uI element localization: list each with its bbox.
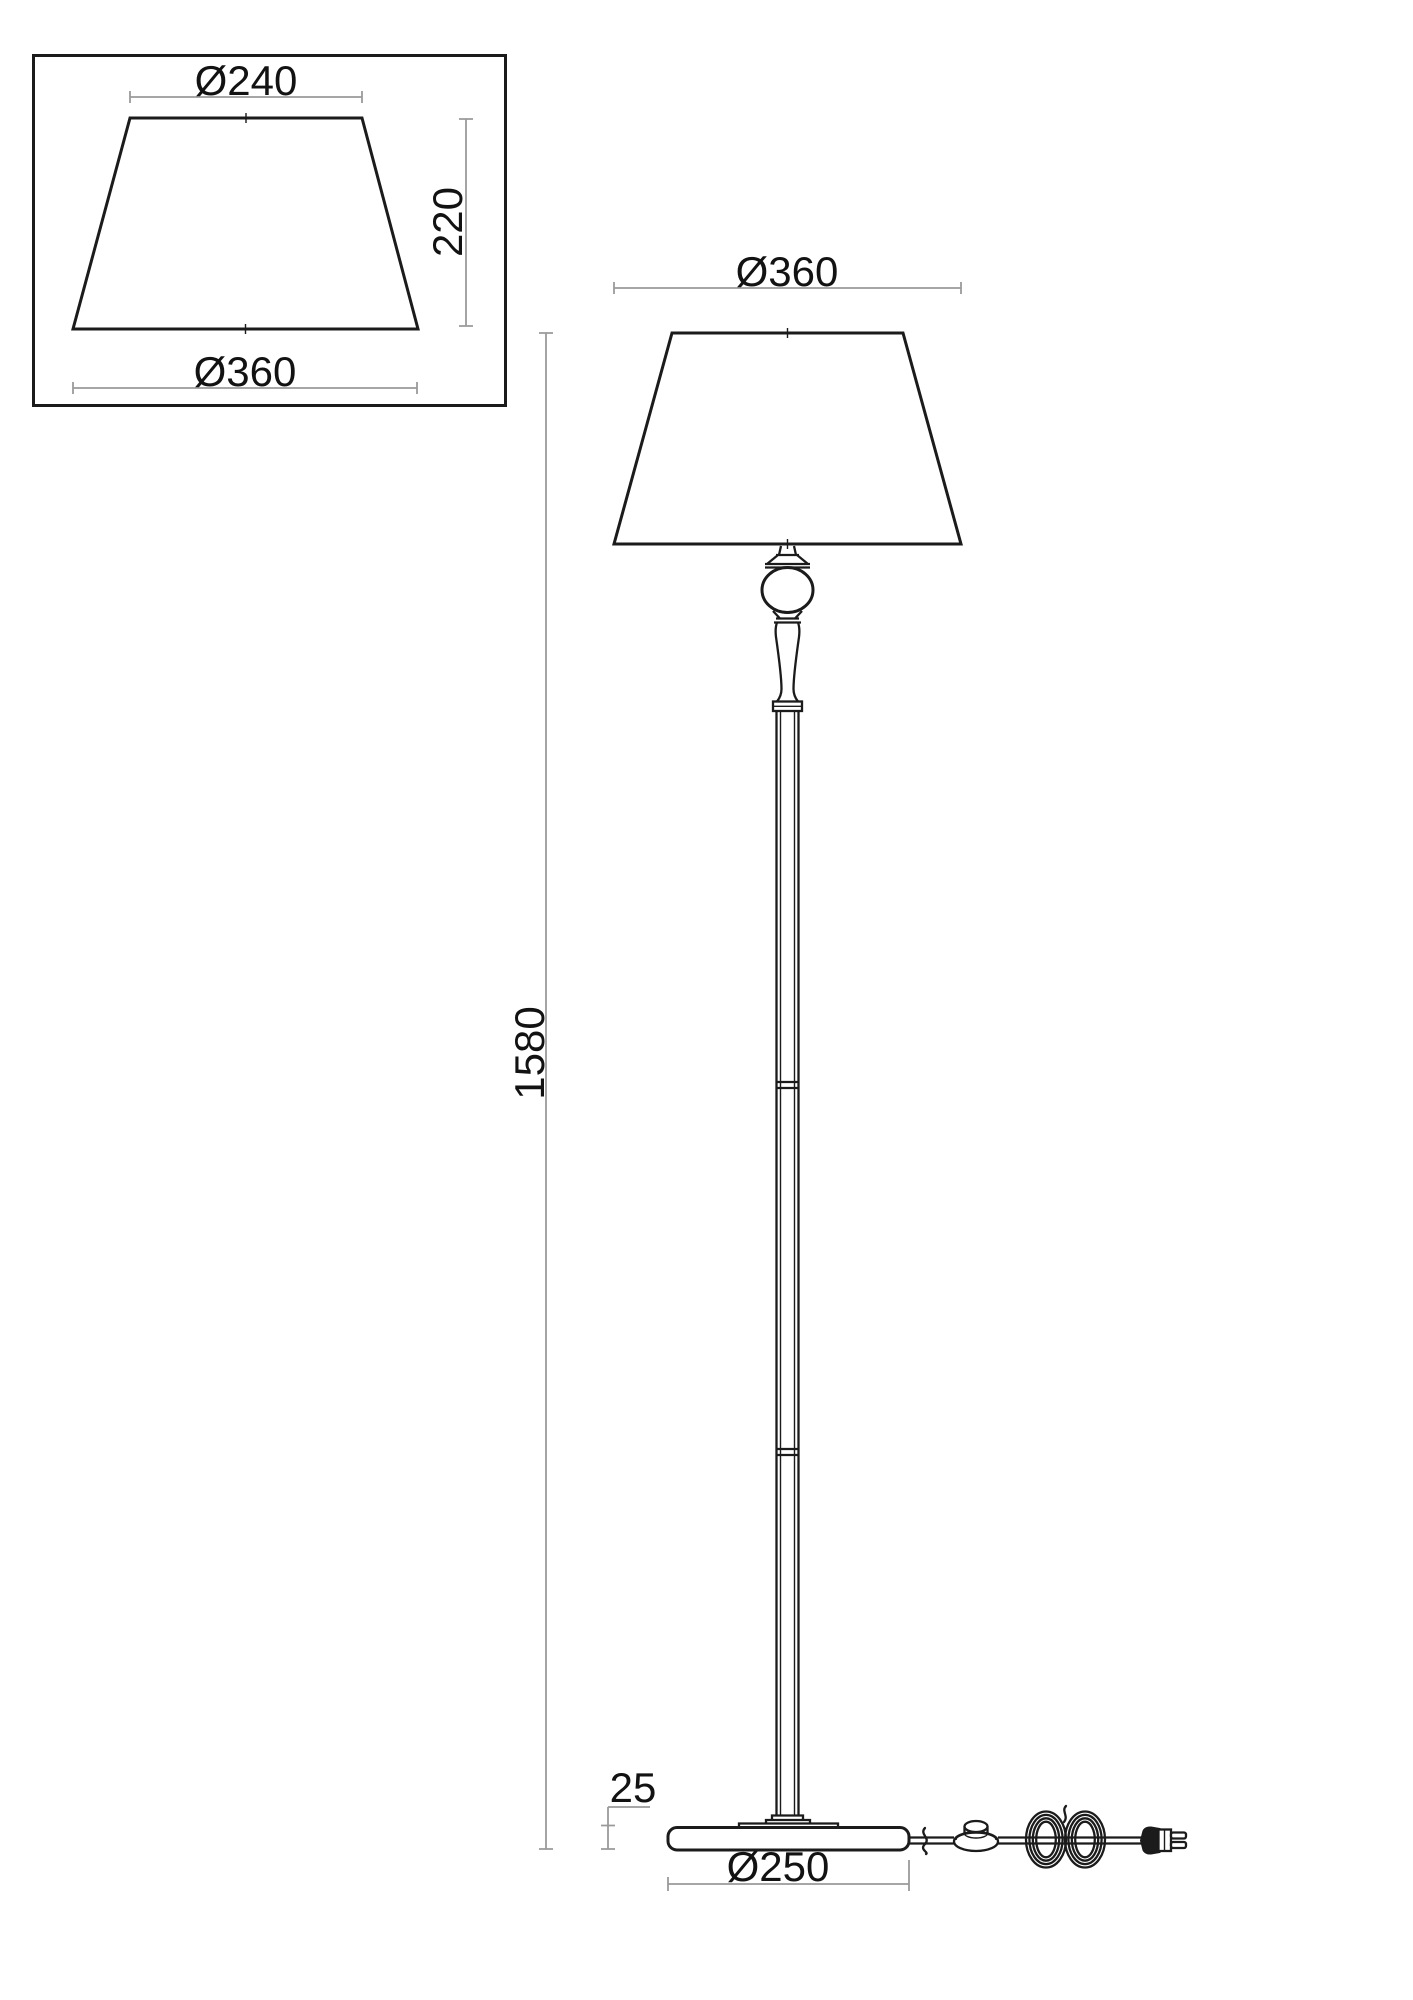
cord-segment-1 [909, 1838, 954, 1844]
total-height-label: 1580 [506, 1006, 553, 1099]
lamp-pole [777, 711, 799, 1815]
shade-detail-view: Ø240 220 Ø360 [34, 56, 506, 406]
stem-ball [762, 568, 813, 613]
power-cord-assembly [909, 1806, 1186, 1868]
stem-cup [765, 555, 810, 568]
dim-shade-top-diameter: Ø240 [130, 57, 362, 104]
lamp-stem [762, 546, 813, 711]
pole-inner-lines [781, 711, 795, 1815]
floor-lamp-dimension-drawing: Ø240 220 Ø360 Ø360 1580 [0, 0, 1413, 2000]
base-height-label: 25 [610, 1764, 657, 1811]
dim-total-height: 1580 [506, 333, 553, 1849]
cord-knot [923, 1828, 927, 1854]
main-shade-diameter-label: Ø360 [736, 248, 839, 295]
dim-main-shade-diameter: Ø360 [614, 248, 961, 295]
pole-base-mount [739, 1816, 838, 1828]
power-plug [1141, 1827, 1186, 1853]
plug-prong-bottom [1171, 1842, 1186, 1848]
lamp-shade [614, 333, 961, 544]
dim-base-height: 25 [601, 1764, 656, 1849]
base-diameter-label: Ø250 [727, 1843, 830, 1890]
coil-top-strand [1064, 1806, 1066, 1822]
technical-drawing-page: { "colors": { "line": "#1b1b1b", "dim_li… [0, 0, 1413, 2000]
shade-height-label: 220 [424, 187, 471, 257]
switch-button [965, 1821, 988, 1832]
shade-bottom-diameter-label: Ø360 [194, 348, 297, 395]
dim-shade-bottom-diameter: Ø360 [73, 348, 417, 395]
dim-shade-height: 220 [424, 119, 473, 326]
lamp-main-view: Ø360 1580 [506, 248, 1186, 1891]
foot-switch [954, 1821, 998, 1851]
candlestick-left-edge [776, 623, 782, 702]
plug-body [1141, 1827, 1160, 1853]
coil-loop [1036, 1822, 1056, 1858]
shade-cross-section [73, 118, 418, 329]
candlestick-right-edge [794, 623, 800, 702]
plug-prong-top [1171, 1833, 1186, 1839]
coil-loop [1075, 1822, 1095, 1858]
shade-top-diameter-label: Ø240 [195, 57, 298, 104]
